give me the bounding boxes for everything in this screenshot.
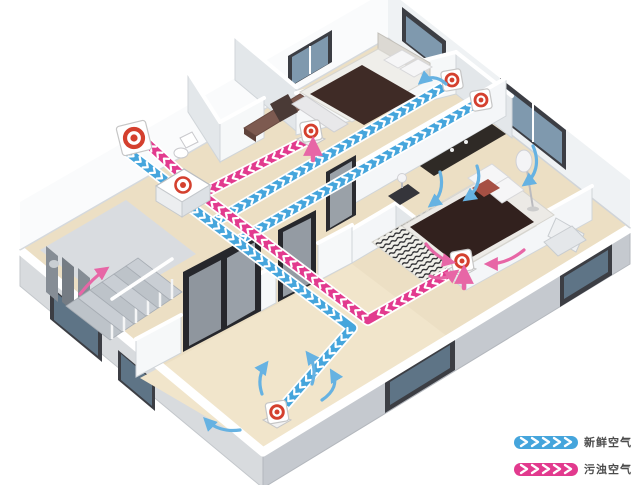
diffuser-dot [479,98,484,103]
diffuser-dot [130,134,137,141]
chevron-glyphs [518,463,574,475]
legend-label-polluted-air: 污浊空气 [584,461,632,477]
diffuser-dot [450,78,455,83]
decor-object [450,148,454,152]
supply-diffuser-master-icon [469,88,492,111]
decor-object [464,140,468,144]
fresh-air-chevron-band-icon [514,436,578,449]
legend-item-polluted-air: 污浊空气 [514,461,632,477]
legend: 新鲜空气 污浊空气 [514,434,632,477]
legend-item-fresh-air: 新鲜空气 [514,434,632,450]
diffuser-dot [274,409,279,414]
supply-diffuser-bedroom1-icon [440,68,463,91]
diffuser-dot [309,129,314,134]
outdoor-vent-icon [116,120,152,156]
decor-object [49,260,59,268]
diffuser-dot [459,258,464,263]
polluted-air-chevron-band-icon [514,463,578,476]
ventilation-diagram: 新鲜空气 污浊空气 [0,0,640,485]
isometric-house-scene [0,0,640,485]
chevron-glyphs [518,436,574,448]
legend-label-fresh-air: 新鲜空气 [584,434,632,450]
